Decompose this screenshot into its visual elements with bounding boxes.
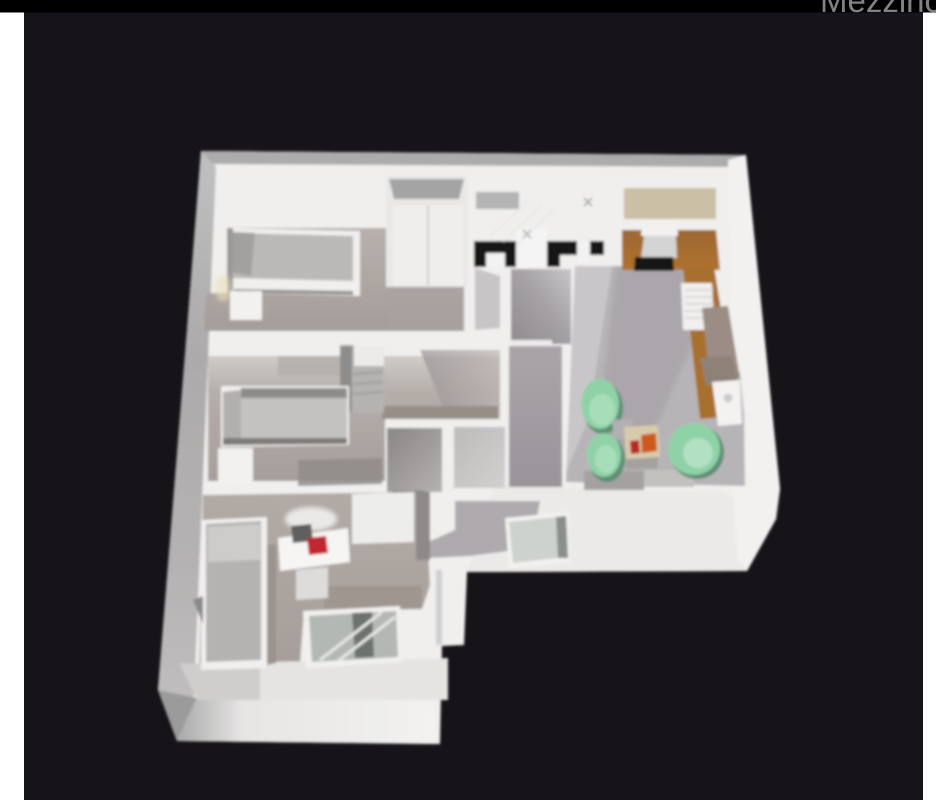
svg-text:Mezzino: Mezzino (820, 0, 936, 19)
